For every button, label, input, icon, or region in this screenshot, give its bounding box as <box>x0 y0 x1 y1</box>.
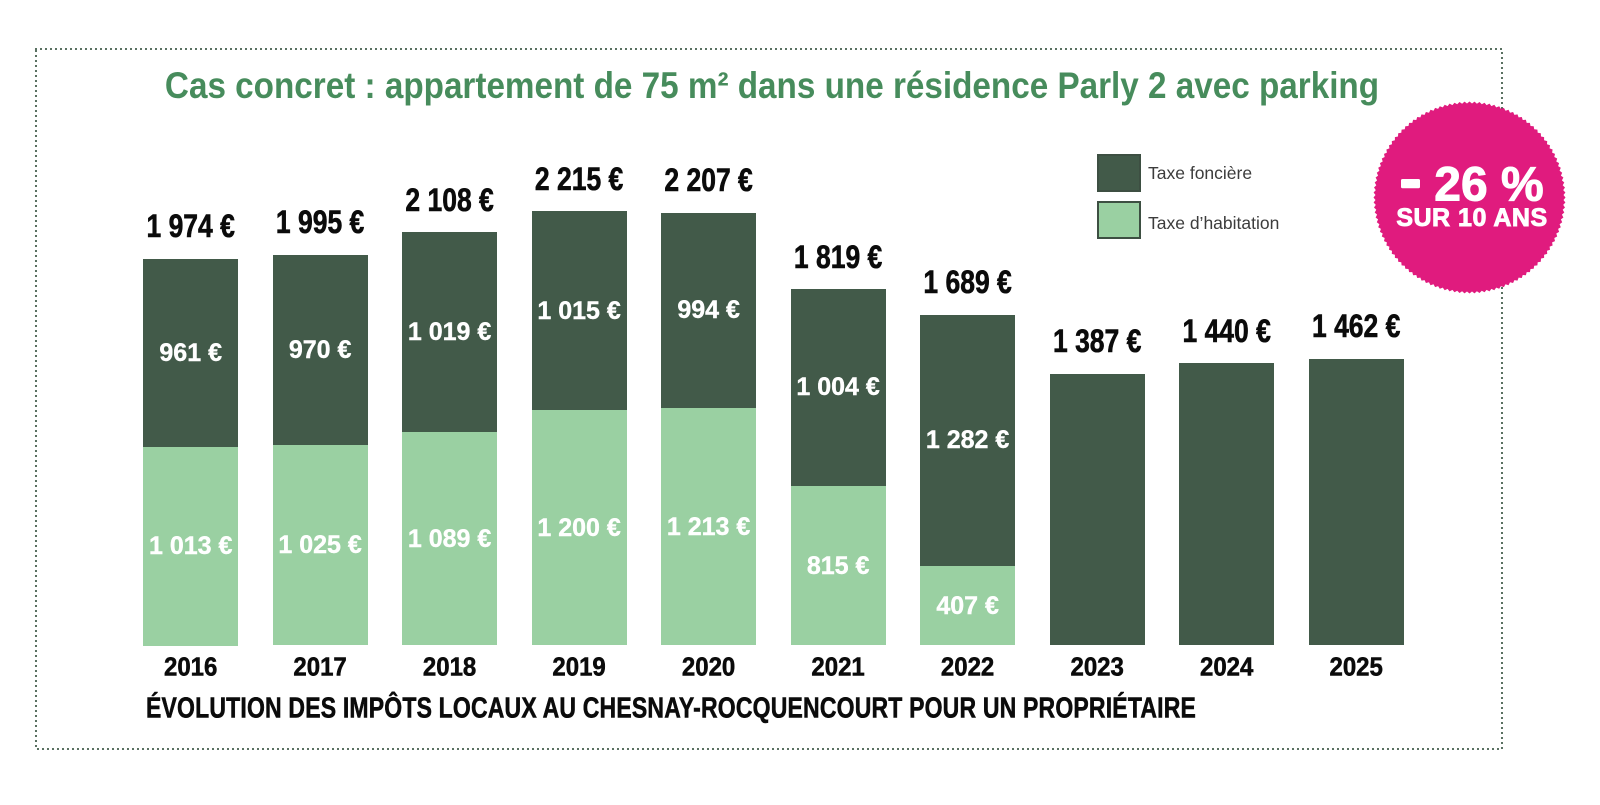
svg-text:SUR 10 ANS: SUR 10 ANS <box>1396 203 1547 231</box>
